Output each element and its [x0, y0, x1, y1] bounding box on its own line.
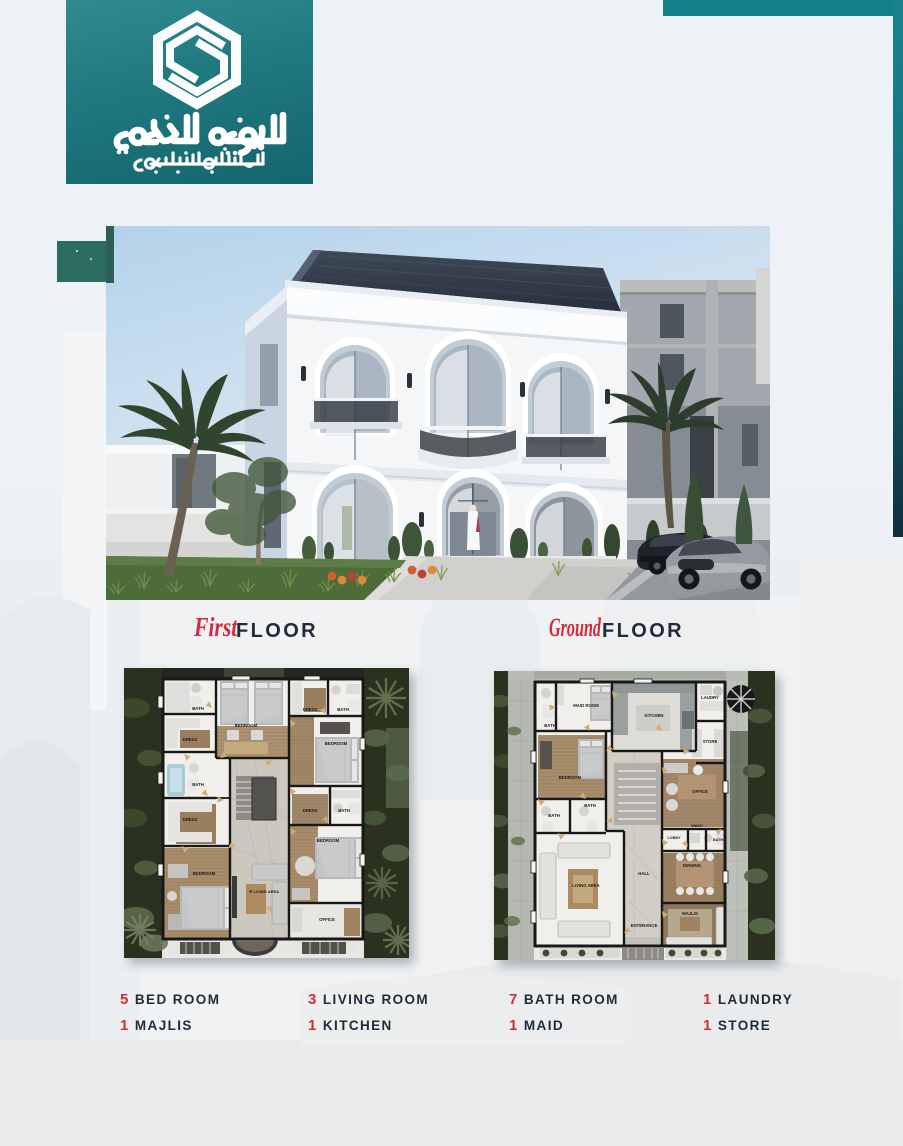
- svg-text:BEDROOM: BEDROOM: [317, 838, 340, 843]
- svg-text:LAUDRY: LAUDRY: [701, 695, 719, 700]
- svg-text:ENTERANCE: ENTERANCE: [631, 923, 658, 928]
- svg-text:BATH: BATH: [192, 706, 204, 711]
- svg-text:OFFICE: OFFICE: [319, 917, 335, 922]
- svg-text:BEDROOM: BEDROOM: [325, 741, 348, 746]
- svg-text:DINNING: DINNING: [683, 863, 702, 868]
- svg-text:BEDROOM: BEDROOM: [235, 723, 258, 728]
- svg-text:BATH: BATH: [338, 808, 350, 813]
- svg-text:BATH: BATH: [192, 782, 204, 787]
- svg-text:DRESS: DRESS: [303, 808, 318, 813]
- svg-text:BATH: BATH: [584, 803, 596, 808]
- svg-text:BATH: BATH: [713, 838, 724, 842]
- svg-text:BEDROOM: BEDROOM: [193, 871, 216, 876]
- svg-text:BATH: BATH: [548, 813, 560, 818]
- svg-text:WASH: WASH: [691, 824, 703, 828]
- svg-text:LOBBY: LOBBY: [667, 836, 681, 840]
- svg-text:MAJLIS: MAJLIS: [682, 911, 698, 916]
- svg-text:BATH: BATH: [544, 723, 556, 728]
- svg-text:HALL: HALL: [638, 871, 650, 876]
- svg-text:BEDROOM: BEDROOM: [559, 775, 582, 780]
- svg-text:MAID ROOM: MAID ROOM: [573, 703, 599, 708]
- svg-text:BATH: BATH: [337, 707, 349, 712]
- svg-text:LIVING AREA: LIVING AREA: [572, 883, 600, 888]
- svg-text:OFFICE: OFFICE: [692, 789, 708, 794]
- svg-text:STORE: STORE: [703, 739, 718, 744]
- svg-text:DRESS: DRESS: [183, 737, 198, 742]
- svg-text:KITCHEN: KITCHEN: [644, 713, 663, 718]
- svg-text:DRESS: DRESS: [183, 817, 198, 822]
- svg-text:DRESS: DRESS: [303, 707, 318, 712]
- svg-text:☀ LIVING AREA: ☀ LIVING AREA: [249, 889, 279, 894]
